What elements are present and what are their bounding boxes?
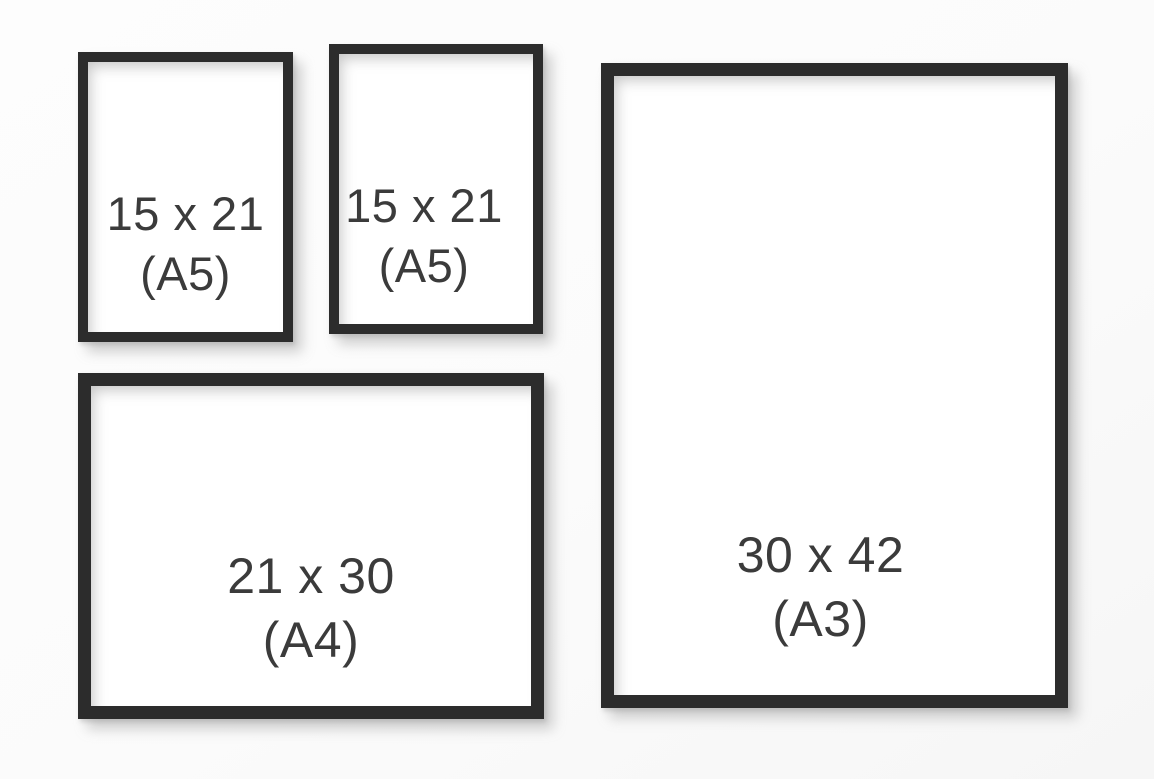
frame-label: 21 x 30 (A4) [91, 544, 531, 672]
frame-format-label: (A5) [327, 236, 521, 296]
frame-size-label: 15 x 21 [327, 176, 521, 236]
frame-format-label: (A4) [91, 608, 531, 672]
frame-size-label: 21 x 30 [91, 544, 531, 608]
picture-frame-a5-top-middle: 15 x 21 (A5) [329, 44, 543, 334]
frame-size-label: 15 x 21 [88, 184, 283, 244]
frame-label: 15 x 21 (A5) [88, 184, 283, 304]
frame-size-diagram: 15 x 21 (A5) 15 x 21 (A5) 21 x 30 (A4) 3… [0, 0, 1154, 779]
picture-frame-a3-right: 30 x 42 (A3) [601, 63, 1068, 708]
frame-format-label: (A3) [600, 587, 1041, 651]
frame-size-label: 30 x 42 [600, 523, 1041, 587]
frame-format-label: (A5) [88, 244, 283, 304]
frame-label: 30 x 42 (A3) [600, 523, 1041, 651]
frame-label: 15 x 21 (A5) [327, 176, 521, 296]
picture-frame-a5-top-left: 15 x 21 (A5) [78, 52, 293, 342]
picture-frame-a4-bottom-left: 21 x 30 (A4) [78, 373, 544, 719]
